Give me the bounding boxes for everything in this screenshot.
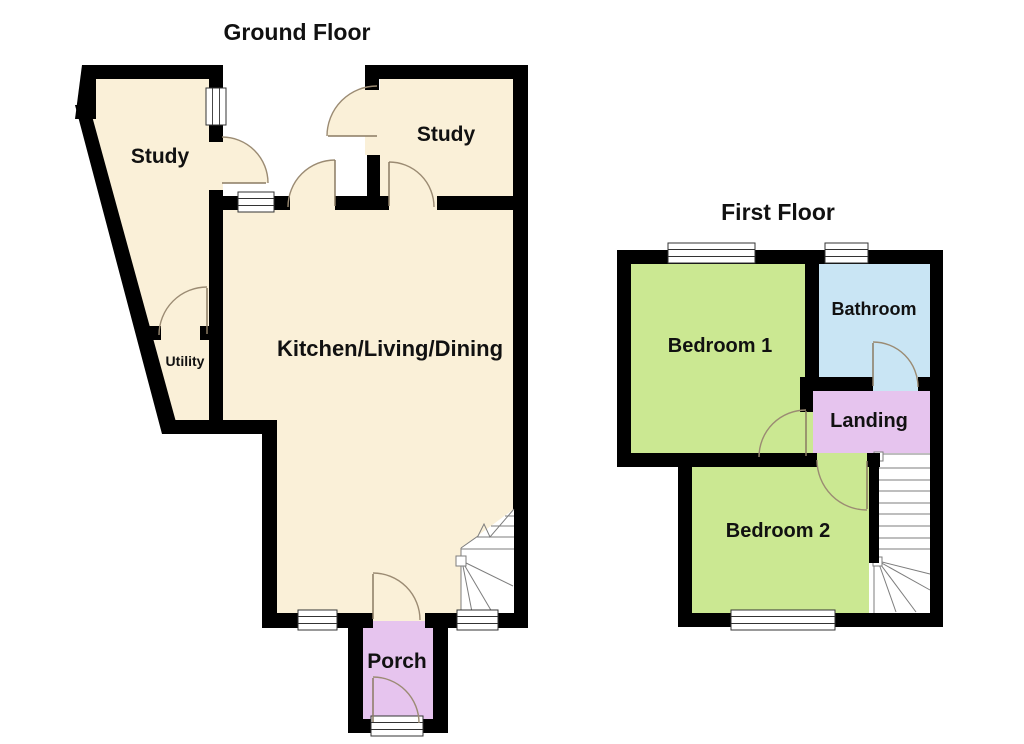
window-kitchen-south-right	[457, 610, 498, 630]
label-utility: Utility	[166, 353, 205, 369]
window-study-left	[206, 88, 226, 125]
label-study-right: Study	[417, 123, 476, 146]
label-bedroom-2: Bedroom 2	[726, 520, 830, 542]
window-bedroom-2	[731, 610, 835, 630]
porch-front-threshold	[371, 716, 423, 736]
window-kitchen-north	[238, 192, 274, 212]
label-kitchen-living-dining: Kitchen/Living/Dining	[277, 336, 503, 361]
window-bathroom	[825, 243, 868, 263]
window-bedroom-1	[668, 243, 755, 263]
label-landing: Landing	[830, 410, 908, 432]
label-porch: Porch	[367, 650, 427, 673]
ground-floor-title: Ground Floor	[224, 19, 371, 45]
door-swing-front-entrance	[288, 160, 335, 207]
first-floor-title: First Floor	[721, 199, 835, 225]
door-swing-study-left	[222, 137, 268, 183]
window-kitchen-south-left	[298, 610, 337, 630]
newel-post	[456, 556, 466, 566]
label-bedroom-1: Bedroom 1	[668, 335, 772, 357]
label-study-left: Study	[131, 145, 190, 168]
door-swing-study-right-west	[327, 86, 377, 136]
floorplan-drawing: Ground Floor Study Study Kitchen/Living/…	[0, 0, 1024, 744]
threshold	[209, 142, 223, 190]
floorplan-page: Ground Floor Study Study Kitchen/Living/…	[0, 0, 1024, 744]
staircase-first	[873, 452, 930, 613]
label-bathroom: Bathroom	[832, 299, 917, 319]
